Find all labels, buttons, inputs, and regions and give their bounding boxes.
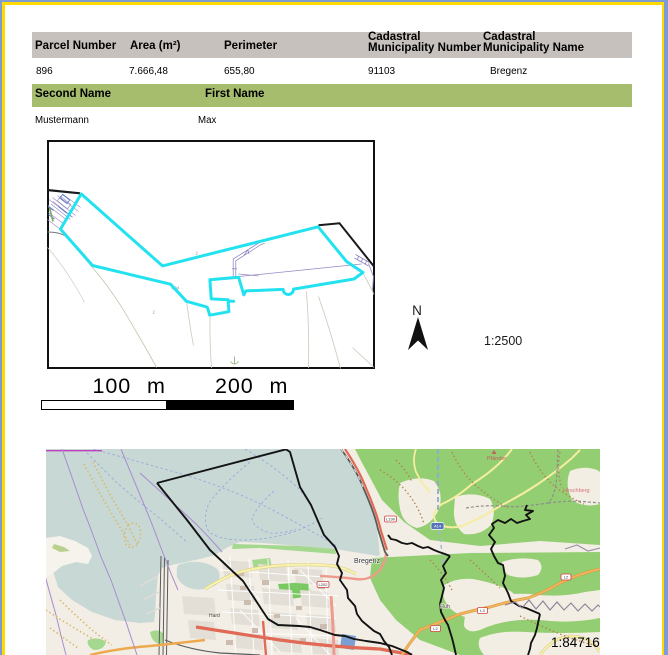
svg-text:L3: L3	[480, 608, 485, 613]
svg-text:L2: L2	[564, 575, 569, 580]
svg-text:L2: L2	[433, 626, 438, 631]
svg-text:Pfänder: Pfänder	[487, 456, 506, 462]
svg-text:1:84716: 1:84716	[551, 635, 600, 650]
svg-text:Fluh: Fluh	[440, 604, 450, 610]
svg-text:Bregenz: Bregenz	[354, 558, 381, 565]
svg-text:L202: L202	[319, 582, 329, 587]
svg-text:Hard: Hard	[209, 613, 220, 619]
svg-text:A14: A14	[434, 524, 442, 529]
svg-text:Hirschberg: Hirschberg	[563, 488, 590, 494]
svg-text:L190: L190	[386, 517, 396, 522]
